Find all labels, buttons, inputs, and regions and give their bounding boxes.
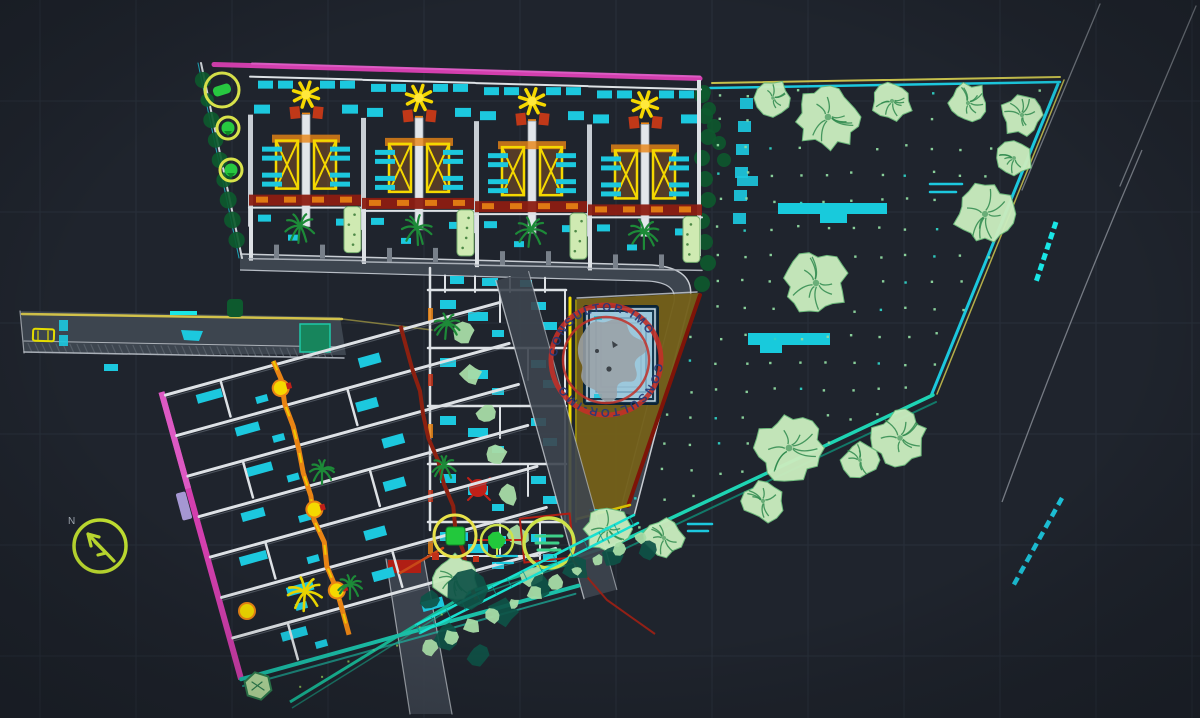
tree-symbol	[948, 83, 986, 122]
cad-viewport[interactable]: N CONSULTOR-IMO CONSULTOR-IMO	[0, 0, 1200, 718]
tree-symbol	[872, 82, 912, 121]
palm-tree-symbol	[310, 460, 334, 484]
north-arrow-icon: N	[68, 516, 126, 572]
tree-symbol	[796, 86, 861, 151]
upper-block	[195, 63, 702, 270]
fan-star-symbol	[407, 85, 432, 110]
fan-star-symbol	[294, 82, 319, 107]
stamp-map-speck	[595, 349, 599, 353]
tree-symbol	[997, 141, 1031, 176]
tree-symbol	[784, 253, 848, 312]
tree-symbol	[753, 415, 824, 481]
housing-unit-module	[248, 77, 363, 261]
tree-symbol	[954, 183, 1016, 242]
stamp-map-speck	[606, 366, 611, 371]
housing-unit-module	[474, 83, 589, 267]
fan-star-symbol	[633, 92, 658, 117]
tree-symbol	[741, 481, 783, 524]
upper-building-block	[195, 63, 702, 270]
planter-circle	[205, 73, 239, 107]
planter-circle	[217, 117, 239, 139]
north-label: N	[68, 516, 75, 527]
north-arrow-pointer	[88, 534, 114, 561]
site-plan-drawing[interactable]: N CONSULTOR-IMO CONSULTOR-IMO	[0, 0, 1200, 718]
